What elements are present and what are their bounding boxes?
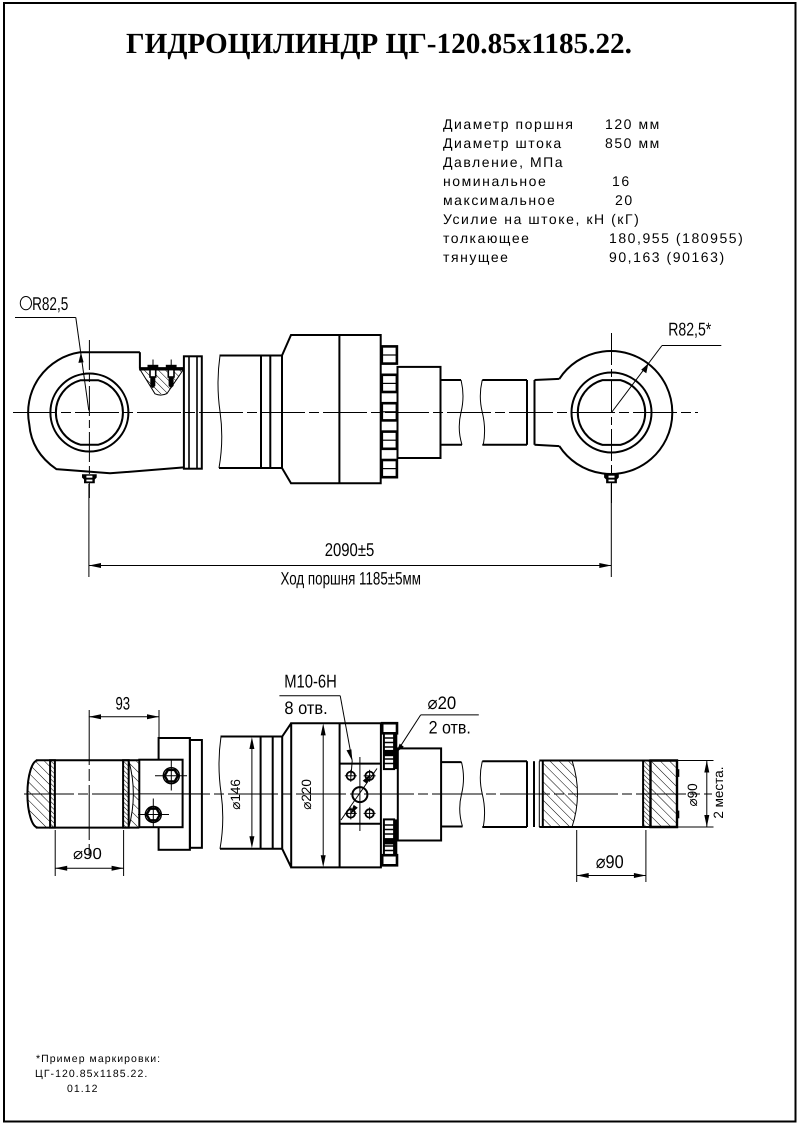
svg-text:⌀90: ⌀90 bbox=[685, 783, 700, 806]
svg-text:120 мм: 120 мм bbox=[605, 116, 661, 132]
svg-text:⌀90: ⌀90 bbox=[73, 846, 102, 863]
svg-text:93: 93 bbox=[116, 694, 131, 714]
svg-text:20: 20 bbox=[615, 192, 634, 208]
svg-text:Ход поршня 1185±5мм: Ход поршня 1185±5мм bbox=[281, 569, 421, 589]
svg-text:максимальное: максимальное bbox=[443, 192, 556, 208]
svg-text:180,955 (180955): 180,955 (180955) bbox=[609, 230, 744, 246]
svg-text:⌀90: ⌀90 bbox=[596, 851, 624, 872]
svg-text:⌀146: ⌀146 bbox=[228, 779, 243, 810]
svg-text:2 места.: 2 места. bbox=[711, 767, 726, 819]
svg-text:Усилие на штоке, кН (кГ): Усилие на штоке, кН (кГ) bbox=[443, 211, 640, 227]
svg-text:Диаметр штока: Диаметр штока bbox=[443, 135, 563, 151]
svg-text:⌀20: ⌀20 bbox=[428, 693, 457, 713]
svg-text:850 мм: 850 мм bbox=[605, 135, 661, 151]
svg-text:ЦГ-120.85х1185.22.: ЦГ-120.85х1185.22. bbox=[35, 1068, 148, 1080]
svg-text:90,163 (90163): 90,163 (90163) bbox=[609, 249, 726, 265]
svg-text:номинальное: номинальное bbox=[443, 173, 547, 189]
svg-text:8 отв.: 8 отв. bbox=[284, 698, 327, 718]
svg-text:*Пример маркировки:: *Пример маркировки: bbox=[36, 1053, 161, 1065]
svg-text:Давление, МПа: Давление, МПа bbox=[443, 154, 564, 170]
svg-text:Диаметр поршня: Диаметр поршня bbox=[443, 116, 575, 132]
svg-text:01.12: 01.12 bbox=[67, 1083, 99, 1095]
svg-text:2 отв.: 2 отв. bbox=[429, 718, 471, 738]
svg-text:ГИДРОЦИЛИНДР ЦГ-120.85х1185.22: ГИДРОЦИЛИНДР ЦГ-120.85х1185.22. bbox=[126, 28, 632, 60]
svg-text:R82,5*: R82,5* bbox=[668, 319, 711, 340]
svg-text:R82,5: R82,5 bbox=[32, 293, 68, 314]
svg-text:2090±5: 2090±5 bbox=[325, 539, 375, 560]
svg-text:толкающее: толкающее bbox=[443, 230, 531, 246]
svg-text:⌀220: ⌀220 bbox=[299, 779, 314, 810]
svg-text:16: 16 bbox=[612, 173, 631, 189]
svg-text:М10-6Н: М10-6Н bbox=[284, 671, 337, 692]
svg-text:тянущее: тянущее bbox=[443, 249, 510, 265]
